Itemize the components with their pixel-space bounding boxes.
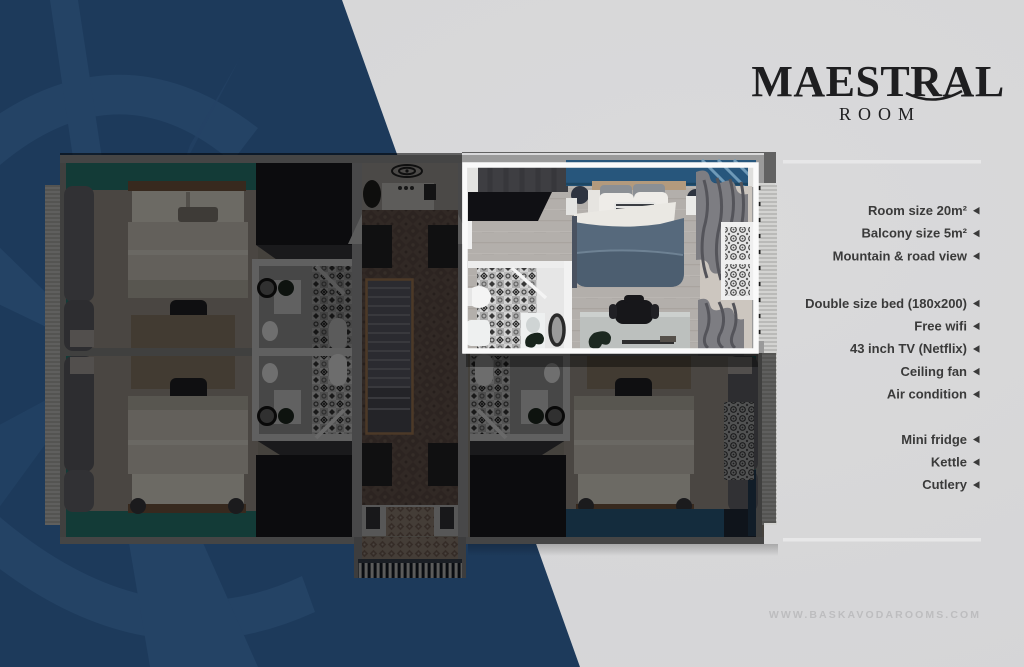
svg-text:WWW.BASKAVODAROOMS.COM: WWW.BASKAVODAROOMS.COM xyxy=(769,609,981,621)
svg-text:43 inch TV (Netflix): 43 inch TV (Netflix) xyxy=(850,341,967,356)
svg-text:Balcony size 5m²: Balcony size 5m² xyxy=(862,226,968,241)
svg-text:Cutlery: Cutlery xyxy=(922,477,968,492)
svg-text:Mountain & road view: Mountain & road view xyxy=(833,248,968,263)
svg-text:MAESTRAL: MAESTRAL xyxy=(751,57,1004,106)
svg-text:Air condition: Air condition xyxy=(887,387,967,402)
svg-text:Double size bed (180x200): Double size bed (180x200) xyxy=(805,296,967,311)
svg-text:ROOM: ROOM xyxy=(839,104,921,124)
svg-text:Ceiling fan: Ceiling fan xyxy=(901,364,968,379)
svg-text:Room size 20m²: Room size 20m² xyxy=(868,203,968,218)
svg-text:Free wifi: Free wifi xyxy=(914,319,967,334)
svg-text:Mini fridge: Mini fridge xyxy=(901,432,967,447)
svg-text:Kettle: Kettle xyxy=(931,455,967,470)
